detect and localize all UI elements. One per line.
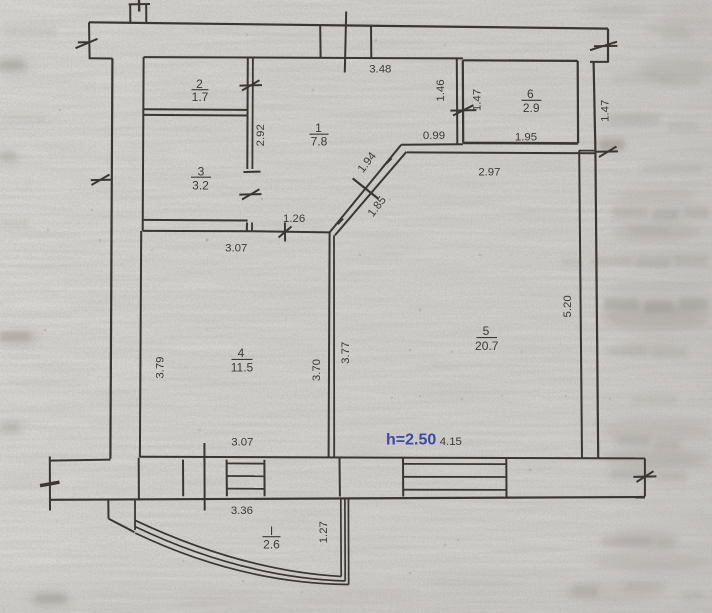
svg-text:2.92: 2.92 (255, 124, 267, 146)
svg-text:1.46: 1.46 (435, 79, 447, 101)
svg-text:3: 3 (198, 164, 205, 178)
svg-text:3.70: 3.70 (311, 359, 323, 381)
svg-text:7.8: 7.8 (311, 135, 328, 149)
svg-text:2.6: 2.6 (263, 538, 280, 552)
svg-text:3.77: 3.77 (340, 342, 352, 364)
svg-text:3.07: 3.07 (231, 437, 253, 449)
svg-text:h=2.50: h=2.50 (386, 431, 436, 448)
svg-text:1.7: 1.7 (192, 90, 209, 104)
svg-text:3.36: 3.36 (231, 505, 253, 517)
svg-text:1.95: 1.95 (515, 132, 537, 144)
svg-text:5.20: 5.20 (562, 295, 574, 317)
svg-text:6: 6 (527, 87, 534, 101)
svg-text:2: 2 (196, 77, 203, 91)
svg-text:20.7: 20.7 (475, 339, 499, 353)
svg-text:3.07: 3.07 (225, 242, 247, 254)
svg-text:2.97: 2.97 (478, 166, 500, 178)
svg-text:0.99: 0.99 (423, 130, 445, 142)
svg-text:1.27: 1.27 (318, 521, 330, 543)
svg-text:3.48: 3.48 (369, 64, 391, 76)
svg-text:4.15: 4.15 (440, 436, 462, 448)
svg-text:5: 5 (483, 324, 490, 338)
svg-text:2.9: 2.9 (523, 101, 540, 115)
svg-text:1.26: 1.26 (283, 213, 305, 225)
svg-text:I: I (270, 524, 273, 538)
svg-text:4: 4 (238, 346, 245, 360)
svg-text:11.5: 11.5 (231, 361, 254, 375)
svg-text:1: 1 (315, 121, 322, 135)
svg-text:1.47: 1.47 (472, 89, 484, 111)
svg-text:3.2: 3.2 (192, 178, 209, 192)
svg-text:1.47: 1.47 (600, 100, 612, 122)
svg-text:3.79: 3.79 (155, 357, 167, 379)
